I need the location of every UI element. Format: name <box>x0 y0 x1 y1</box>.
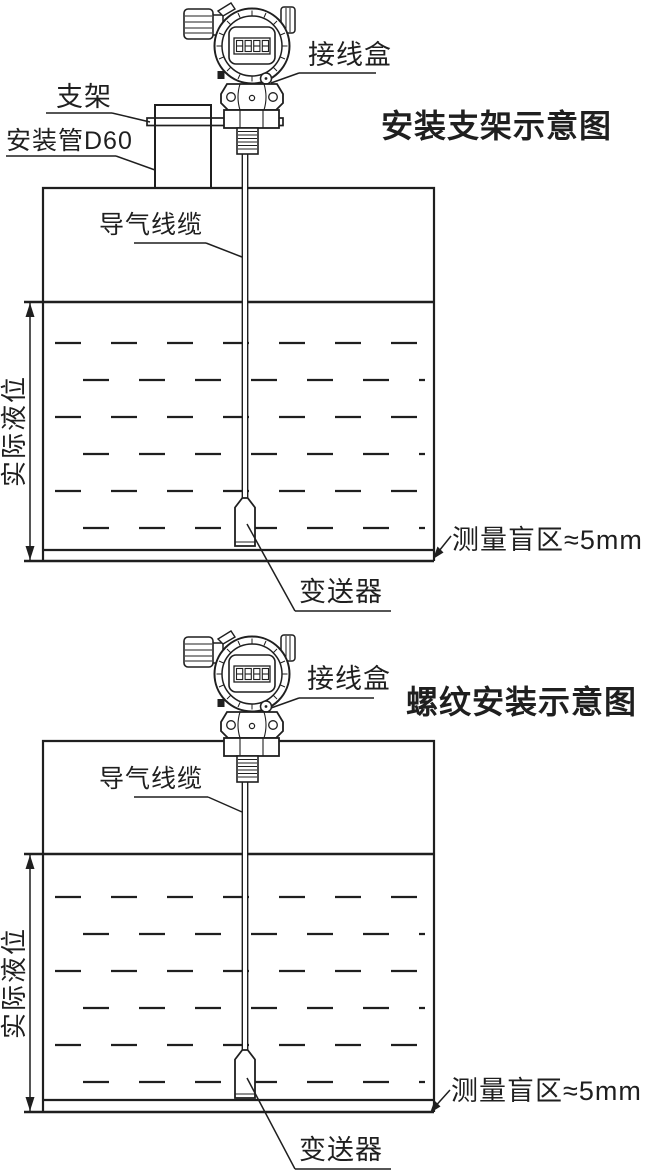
probe-top <box>235 498 255 546</box>
label-junction-box-top: 接线盒 <box>308 42 392 69</box>
label-air-cable-top: 导气线缆 <box>99 213 203 238</box>
label-transmitter-bottom: 变送器 <box>299 1137 383 1164</box>
installation-diagram-page: 安装支架示意图 接线盒 支架 安装管D60 导气线缆 实际液位 变送器 测量盲区… <box>0 0 650 1171</box>
label-actual-level-top: 实际液位 <box>1 375 27 487</box>
label-blind-zone-bottom: 测量盲区≈5mm <box>451 1078 642 1105</box>
label-bracket: 支架 <box>56 84 112 111</box>
label-transmitter-top: 变送器 <box>299 579 383 606</box>
diagram-title-thread: 螺纹安装示意图 <box>406 686 637 718</box>
label-blind-zone-top: 测量盲区≈5mm <box>452 527 643 554</box>
transmitter-head-bottom <box>184 631 295 782</box>
transmitter-head-top <box>184 3 295 154</box>
label-junction-box-bottom: 接线盒 <box>307 666 391 693</box>
label-mounting-pipe: 安装管D60 <box>6 129 133 154</box>
label-air-cable-bottom: 导气线缆 <box>99 767 203 792</box>
air-cable-top <box>242 154 247 498</box>
bracket-diagram <box>6 3 451 1112</box>
air-cable-bottom <box>242 782 247 1050</box>
probe-bottom <box>235 1050 255 1098</box>
thread-diagram <box>24 631 450 1169</box>
label-actual-level-bottom: 实际液位 <box>1 927 27 1039</box>
diagram-title-bracket: 安装支架示意图 <box>381 110 612 142</box>
